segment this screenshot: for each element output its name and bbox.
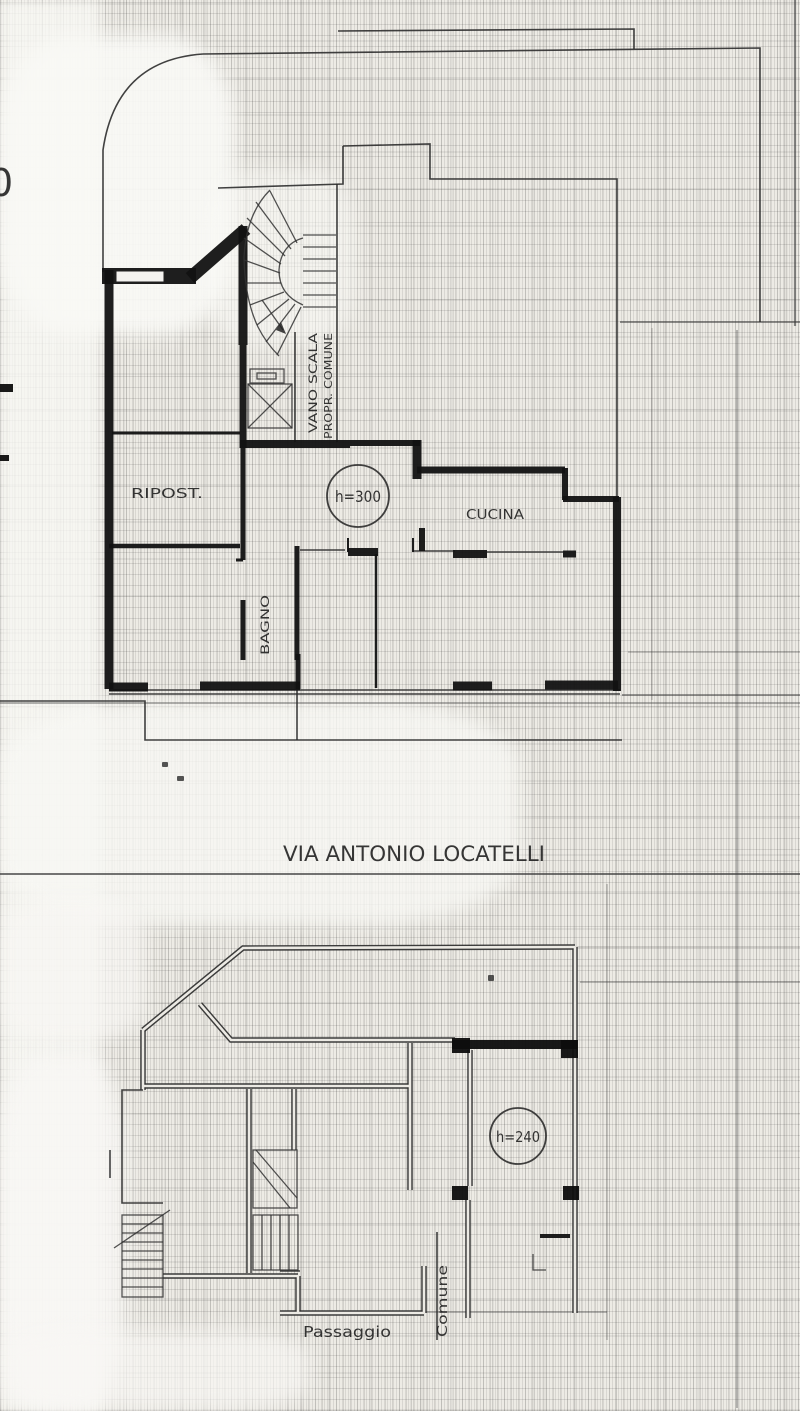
ceiling-height-value-lower: h=240 (496, 1128, 540, 1146)
ceiling-height-bubble-lower: h=240 (490, 1108, 546, 1164)
room-label-ripost: RIPOST. (131, 487, 203, 502)
stairwell-label-line1: VANO SCALA (306, 333, 320, 433)
survey-grid-lines (0, 0, 800, 1408)
ceiling-height-bubble-upper: h=300 (327, 465, 389, 527)
stairwell-label-line2: PROPR. COMUNE (322, 333, 335, 439)
upper-plan-walls (102, 226, 619, 691)
room-label-bagno: BAGNO (258, 595, 272, 655)
elevator-shaft (248, 369, 292, 428)
upper-plan-outline (0, 29, 760, 740)
staircase (244, 190, 336, 356)
lower-plan-staircase (114, 1210, 170, 1297)
ceiling-height-value-upper: h=300 (335, 487, 381, 506)
room-label-cucina: CUCINA (466, 508, 524, 523)
upper-plan-labels: VANO SCALA PROPR. COMUNE RIPOST. CUCINA … (131, 333, 524, 655)
scanned-floor-plan-sheet: VANO SCALA PROPR. COMUNE RIPOST. CUCINA … (0, 0, 800, 1411)
lower-plan-duct-boxes (253, 1150, 298, 1270)
street-name-label: VIA ANTONIO LOCATELLI (283, 842, 545, 866)
margin-edge-character: 0 (0, 161, 13, 205)
passaggio-label: Passaggio (303, 1323, 391, 1341)
comune-label: Comune (436, 1265, 451, 1337)
margin-marks: 0 (0, 161, 13, 461)
plan-drawing: VANO SCALA PROPR. COMUNE RIPOST. CUCINA … (0, 0, 800, 1411)
